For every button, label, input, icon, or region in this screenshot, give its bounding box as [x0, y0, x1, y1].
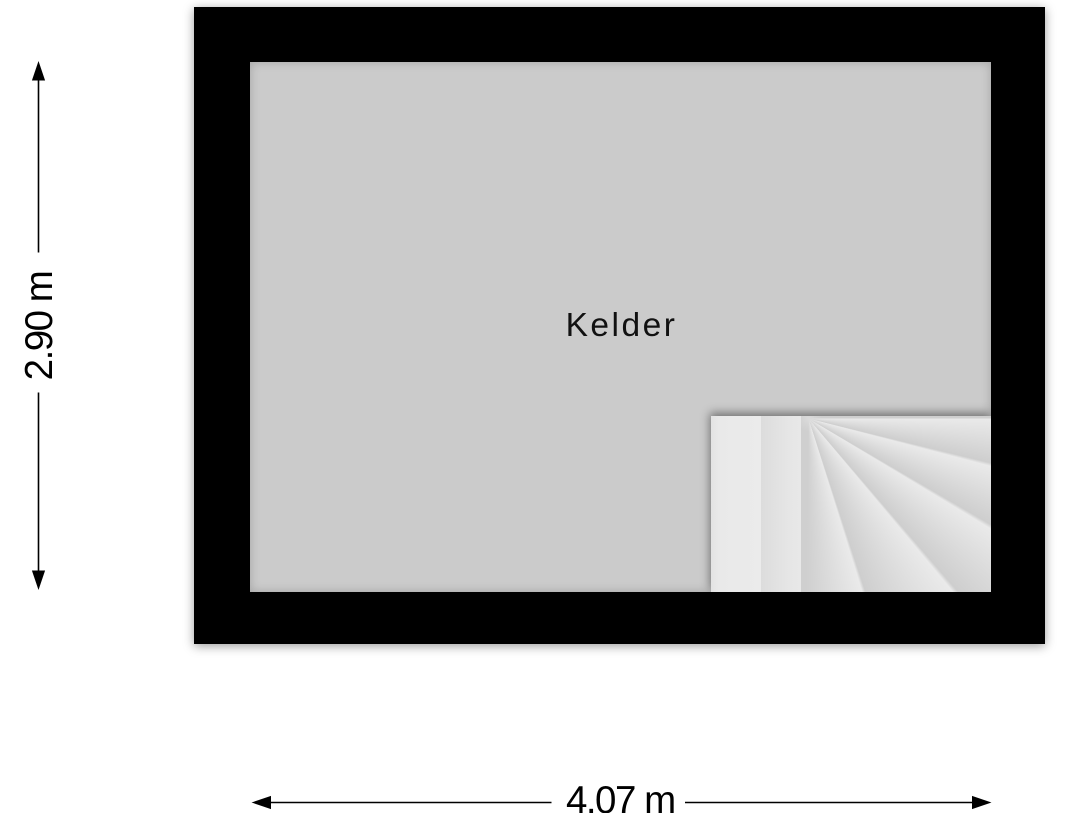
- svg-text:4.07 m: 4.07 m: [566, 779, 675, 813]
- svg-text:2.90 m: 2.90 m: [18, 272, 61, 381]
